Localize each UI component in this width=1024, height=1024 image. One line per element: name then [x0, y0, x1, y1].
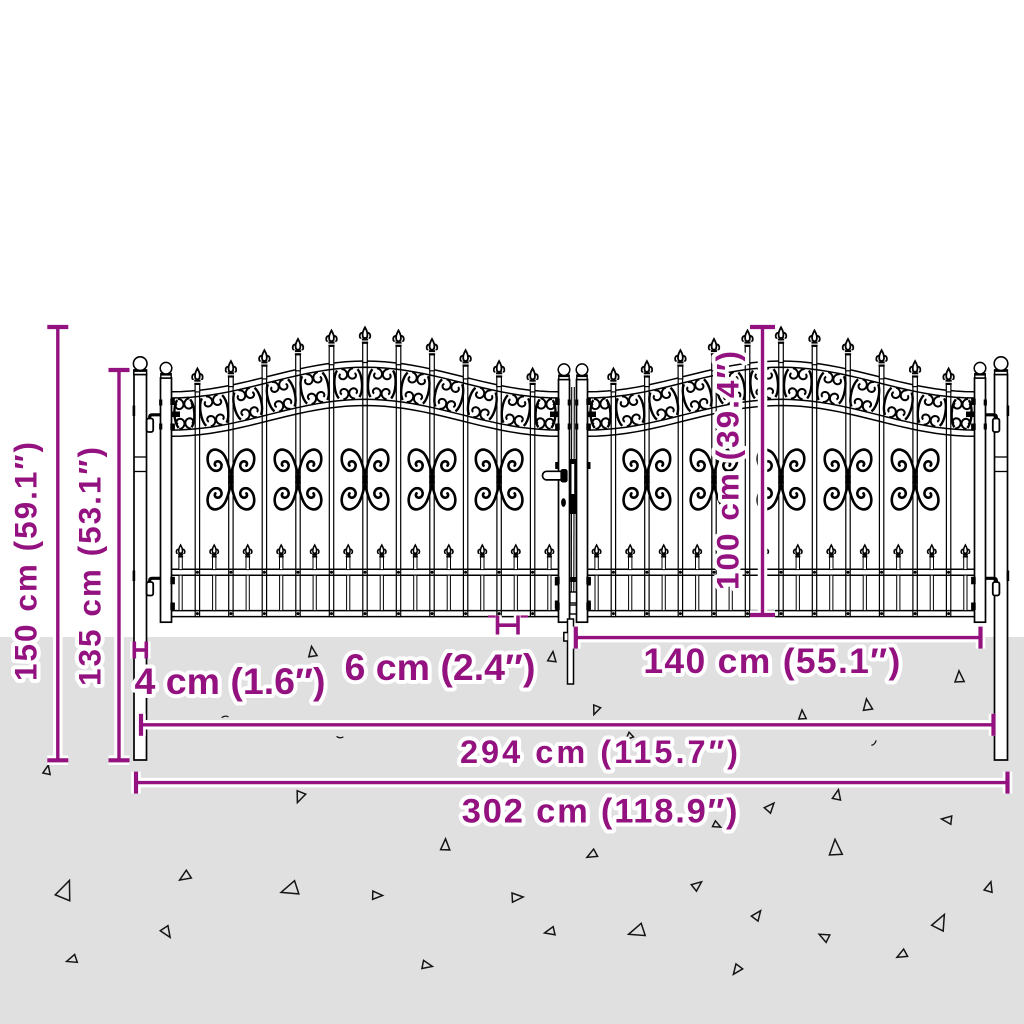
svg-text:302 cm (118.9″): 302 cm (118.9″): [462, 793, 740, 831]
svg-text:6 cm (2.4″): 6 cm (2.4″): [345, 646, 536, 688]
svg-text:294 cm (115.7″): 294 cm (115.7″): [460, 734, 741, 770]
svg-text:150 cm (59.1″): 150 cm (59.1″): [8, 440, 44, 681]
svg-text:140 cm (55.1″): 140 cm (55.1″): [643, 641, 901, 681]
svg-text:135 cm (53.1″): 135 cm (53.1″): [72, 445, 108, 686]
svg-text:4 cm (1.6″): 4 cm (1.6″): [135, 660, 326, 702]
svg-text:100 cm (39.4″): 100 cm (39.4″): [710, 349, 746, 590]
